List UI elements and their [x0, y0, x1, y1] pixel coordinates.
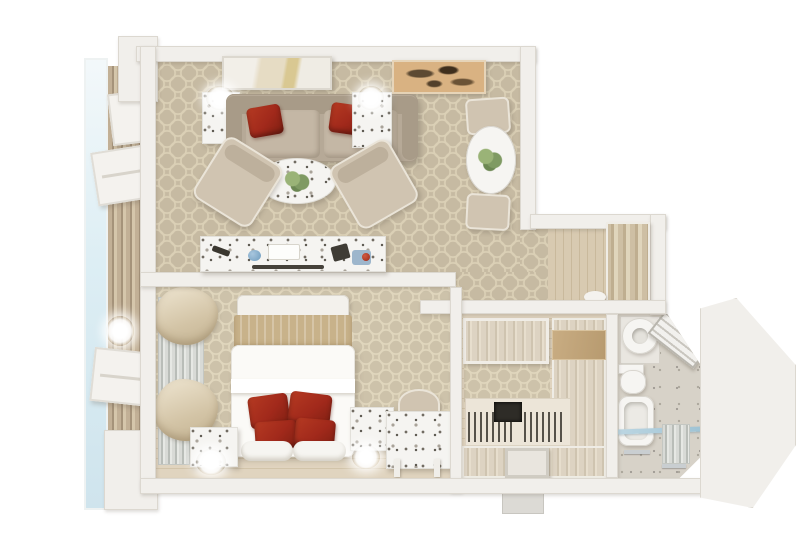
console-open-book — [268, 244, 300, 260]
wall-left — [140, 46, 156, 490]
bed-tan-blanket — [234, 315, 352, 349]
bathroom-bathtub — [618, 396, 654, 446]
bathroom-bathtub-basin — [624, 402, 648, 440]
entry-door — [606, 222, 650, 302]
bathroom-towel-rail-2 — [662, 464, 686, 468]
wall-bedroom-closet — [450, 287, 462, 492]
hallway-floor-lower — [455, 272, 548, 302]
closet-wardrobe-open-door — [552, 330, 606, 360]
dining-table-plant — [476, 146, 504, 172]
bedroom — [156, 287, 450, 478]
sofa-arm-right — [402, 96, 418, 160]
living-room-painting — [222, 56, 332, 90]
sofa-red-pillow-left — [246, 103, 285, 138]
bathroom-sink-basin — [632, 328, 648, 344]
nightstand-left-lamp — [196, 449, 226, 475]
bed-white-pillow-1 — [241, 441, 293, 461]
console-blue-bowl — [248, 250, 261, 261]
console-decor-box — [352, 250, 371, 265]
side-table-right-lamp — [358, 86, 384, 110]
bathroom — [618, 314, 706, 478]
bathroom-radiator — [662, 424, 690, 464]
bathroom-toilet — [620, 370, 646, 394]
wall-bathroom-exterior — [700, 298, 796, 508]
dining-chair-bottom — [465, 193, 511, 231]
bedroom-desk-leg-2 — [434, 459, 440, 477]
console-decor-red-ball — [362, 253, 370, 261]
dining-painting — [392, 60, 486, 94]
floor-plan-render — [0, 0, 800, 533]
console-soundbar — [252, 265, 324, 269]
nightstand-right-lamp — [352, 445, 380, 469]
console-remote — [212, 245, 231, 257]
media-console — [200, 236, 386, 272]
closet-open-compartment — [494, 402, 522, 422]
console-tablet — [330, 243, 350, 262]
bed — [231, 295, 355, 463]
balcony-wall-lamp — [106, 316, 134, 346]
dining-table — [466, 126, 516, 194]
bathroom-towel-rail-1 — [624, 450, 650, 454]
closet-hanging-rail-right — [524, 412, 566, 442]
wall-dining-right — [520, 46, 536, 230]
wall-bottom — [140, 478, 740, 494]
wall-closet-bathroom — [606, 314, 618, 478]
bedroom-desk-leg-1 — [394, 459, 400, 477]
wall-bedroom-top — [140, 272, 456, 287]
bed-white-pillow-2 — [293, 441, 346, 461]
walk-in-closet — [462, 314, 606, 478]
service-shaft — [502, 492, 544, 514]
closet-upper-cabinet — [463, 318, 549, 364]
coffee-table-plant — [282, 170, 312, 192]
closet-stool — [505, 448, 549, 478]
